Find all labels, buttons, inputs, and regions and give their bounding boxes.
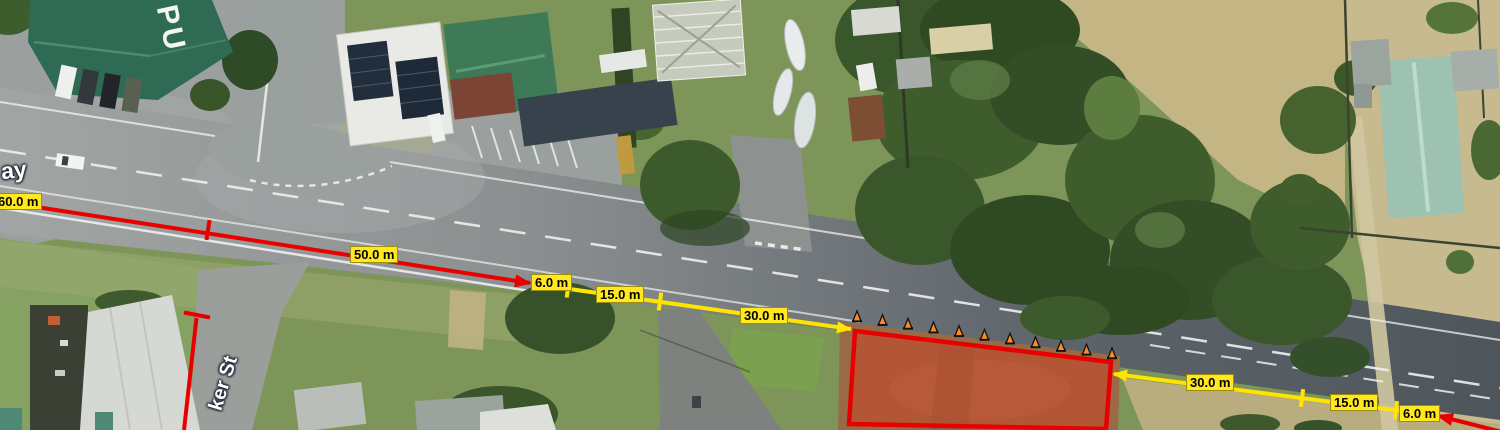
bottom-left-warehouse xyxy=(0,295,200,430)
aerial-map-canvas[interactable]: 60.0 m 50.0 m 6.0 m 15.0 m 30.0 m 30.0 m… xyxy=(0,0,1500,430)
measurement-label-15m-left[interactable]: 15.0 m xyxy=(596,286,644,303)
road-name-label: ay xyxy=(0,156,28,186)
measurement-label-6m-right[interactable]: 6.0 m xyxy=(1399,405,1440,422)
measurement-label-15m-right[interactable]: 15.0 m xyxy=(1330,394,1378,411)
measurement-label-50m-left[interactable]: 50.0 m xyxy=(350,246,398,263)
measurement-label-6m-left[interactable]: 6.0 m xyxy=(531,274,572,291)
greenhouse xyxy=(652,0,745,81)
measurement-label-30m-left[interactable]: 30.0 m xyxy=(740,307,788,324)
red-building xyxy=(450,72,516,119)
measurement-label-60m-left[interactable]: 60.0 m xyxy=(0,193,42,210)
measurement-label-30m-right[interactable]: 30.0 m xyxy=(1186,374,1234,391)
